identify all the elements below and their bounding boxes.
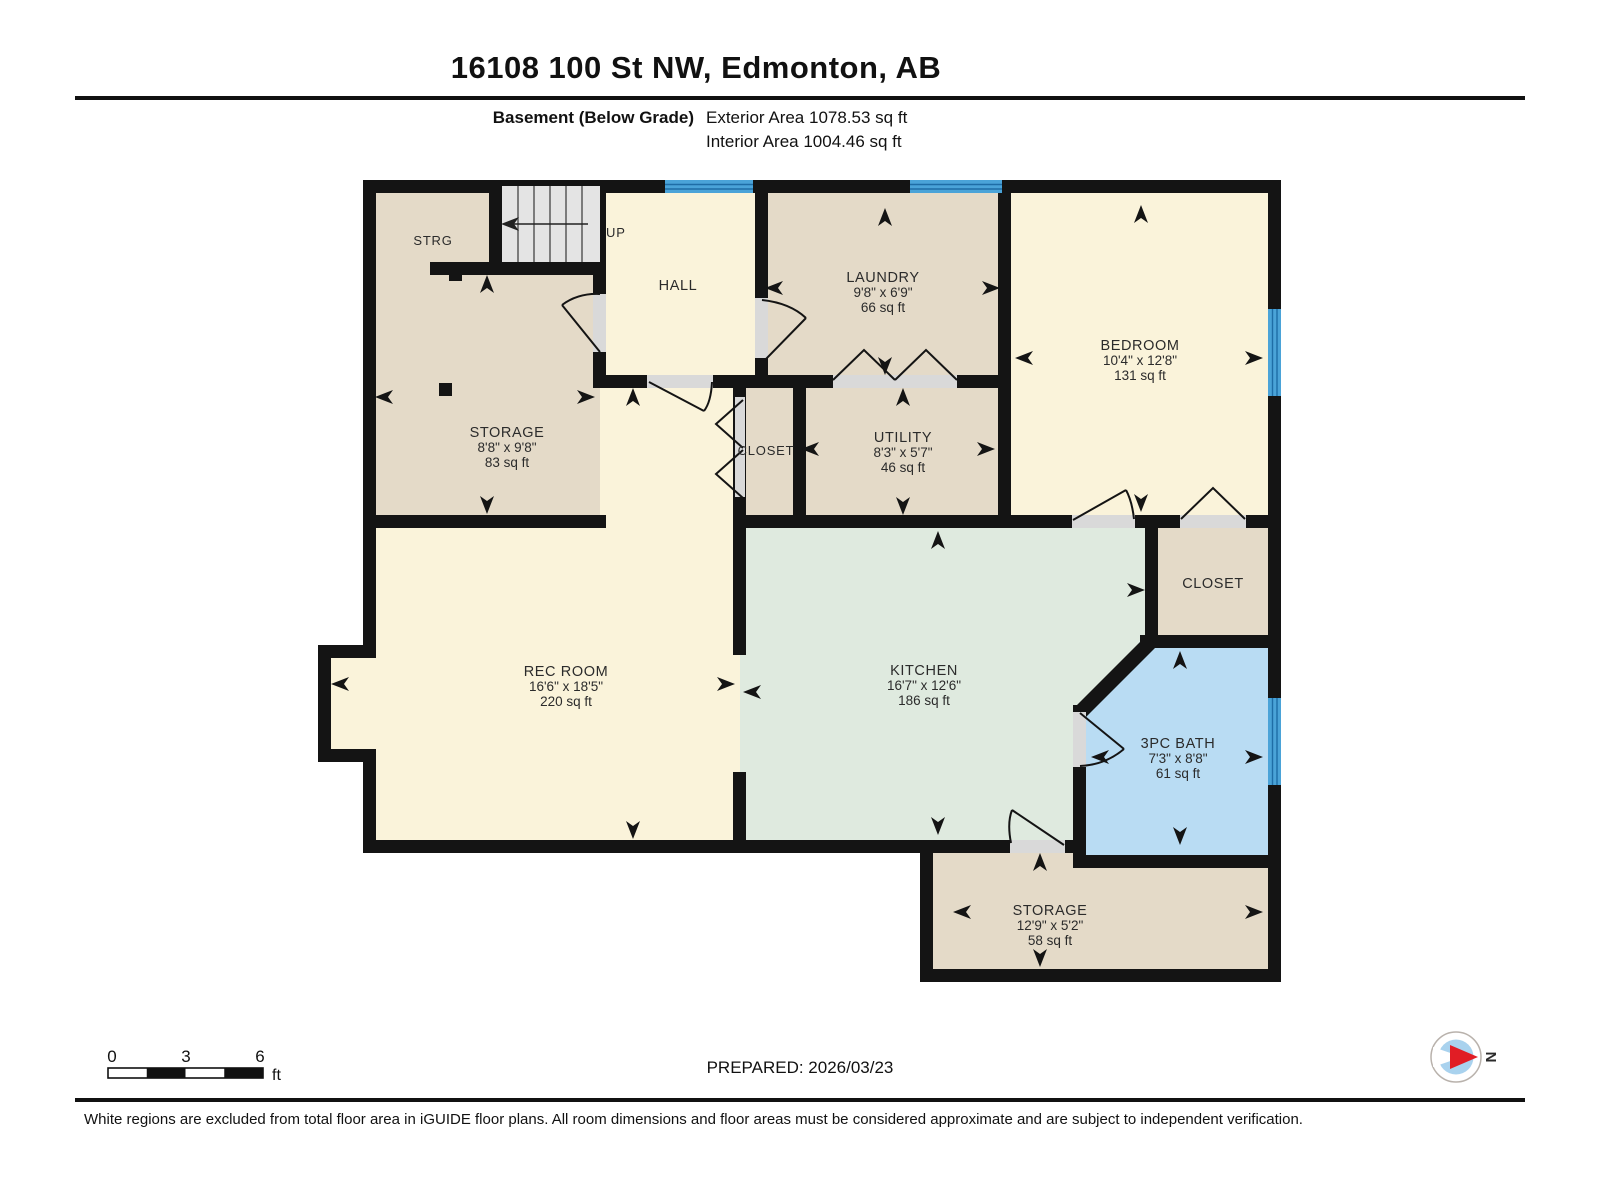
label-laundry-area: 66 sq ft <box>861 300 906 315</box>
label-storage-nw-dims: 8'8" x 9'8" <box>477 440 536 455</box>
label-utility-area: 46 sq ft <box>881 460 926 475</box>
label-utility-dims: 8'3" x 5'7" <box>873 445 932 460</box>
label-hall: HALL <box>659 278 698 294</box>
window-bath <box>1268 698 1281 785</box>
label-laundry-dims: 9'8" x 6'9" <box>853 285 912 300</box>
label-storage-s-area: 58 sq ft <box>1028 933 1073 948</box>
label-bath-dims: 7'3" x 8'8" <box>1148 751 1207 766</box>
label-kitchen: KITCHEN <box>890 663 958 679</box>
label-up: UP <box>606 225 626 240</box>
floor-plan-page: 16108 100 St NW, Edmonton, AB Basement (… <box>0 0 1600 1200</box>
label-bedroom-dims: 10'4" x 12'8" <box>1103 353 1177 368</box>
label-storage-s: STORAGE <box>1013 903 1088 919</box>
label-closet-mid: CLOSET <box>738 443 795 458</box>
post <box>449 268 462 281</box>
stairs <box>501 186 600 262</box>
label-utility: UTILITY <box>874 430 932 446</box>
label-kitchen-dims: 16'7" x 12'6" <box>887 678 961 693</box>
window-bedroom <box>1268 309 1281 396</box>
label-strg: STRG <box>413 233 452 248</box>
post <box>439 383 452 396</box>
room-corridor <box>600 375 740 522</box>
disclaimer-text: White regions are excluded from total fl… <box>84 1111 1303 1128</box>
label-rec-area: 220 sq ft <box>540 694 592 709</box>
label-rec: REC ROOM <box>524 664 609 680</box>
label-closet-right: CLOSET <box>1182 576 1244 592</box>
label-bedroom: BEDROOM <box>1100 338 1179 354</box>
window-laundry <box>910 180 1002 193</box>
label-bath-area: 61 sq ft <box>1156 766 1201 781</box>
floor-plan-canvas: STRG UP HALL STORAGE 8'8" x 9'8" 83 sq f… <box>0 0 1600 1200</box>
label-storage-s-dims: 12'9" x 5'2" <box>1017 918 1084 933</box>
label-bath: 3PC BATH <box>1141 736 1216 752</box>
footer-divider-line <box>75 1098 1525 1102</box>
room-rec-nook <box>324 652 376 756</box>
label-storage-nw-area: 83 sq ft <box>485 455 530 470</box>
label-storage-nw: STORAGE <box>470 425 545 441</box>
label-kitchen-area: 186 sq ft <box>898 693 950 708</box>
prepared-date: PREPARED: 2026/03/23 <box>0 1058 1600 1078</box>
label-laundry: LAUNDRY <box>846 270 919 286</box>
window-hall <box>665 180 753 193</box>
label-bedroom-area: 131 sq ft <box>1114 368 1166 383</box>
label-rec-dims: 16'6" x 18'5" <box>529 679 603 694</box>
